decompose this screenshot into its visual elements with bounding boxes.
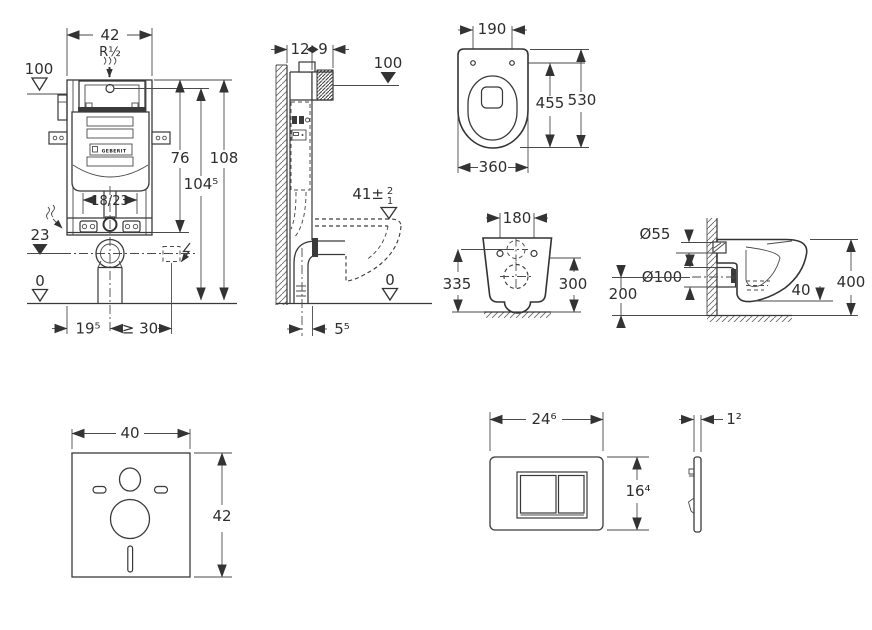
ground-hatch (484, 312, 551, 318)
wall-section-right (707, 218, 717, 315)
dim-label-360: 360 (479, 158, 508, 176)
dim-label-19-5: 19⁵ (75, 320, 100, 338)
level-mark-0-side: 0 (383, 271, 398, 300)
flush-plate-side-view: 1² (679, 410, 742, 532)
plate-clip-bottom (689, 498, 695, 514)
plate-outline (490, 457, 603, 530)
floor-hatch (707, 316, 792, 322)
dim-label-24-6: 24⁶ (531, 410, 556, 428)
wc-rear-view: 180 335 300 (443, 209, 588, 318)
dim-label-108: 108 (210, 149, 239, 167)
dim-mat-width-40: 40 (72, 424, 190, 449)
hot-water-steam-icon-small (47, 205, 63, 228)
level-mark-100: 100 (25, 60, 67, 94)
level-mark-23: 23 (27, 226, 62, 255)
bottom-fittings (67, 217, 152, 233)
dim-plate-height: 16⁴ (607, 457, 651, 530)
level-label-0: 0 (35, 272, 45, 290)
inspection-box (78, 81, 209, 112)
dim-plate-thickness: 1² (679, 410, 742, 452)
dim-offset-19-5: 19⁵ (52, 306, 101, 338)
dim-label-o100: Ø100 (642, 268, 682, 286)
dim-label-o55: Ø55 (640, 225, 671, 243)
frame-side-view: 12 9 100 41± 2 1 0 5⁵ (271, 40, 432, 338)
dim-height-104-5: 104⁵ (184, 89, 219, 301)
dim-label-5-5: 5⁵ (334, 320, 350, 338)
protection-box (317, 70, 333, 100)
brand-label: GEBERIT (102, 149, 127, 155)
level-mark-100-side: 100 (333, 54, 402, 86)
technical-drawing-sheet: 42 R½ 100 GEBERIT (0, 0, 872, 630)
frame-front-view: 42 R½ 100 GEBERIT (25, 26, 239, 338)
level-label-100: 100 (25, 60, 54, 78)
dim-mat-height-42: 42 (194, 453, 232, 577)
wall-section (276, 65, 287, 305)
frame-column (290, 62, 333, 303)
dim-plate-width: 24⁶ (490, 410, 603, 451)
level-label-23: 23 (30, 226, 49, 244)
dim-label-42: 42 (100, 26, 119, 44)
dim-label-40: 40 (791, 281, 810, 299)
dim-label-530: 530 (568, 91, 597, 109)
dim-label-mat-42: 42 (212, 507, 231, 525)
level-label-100-side: 100 (374, 54, 403, 72)
dim-height-335: 335 (443, 250, 484, 313)
dim-label-335: 335 (443, 275, 472, 293)
dim-label-9: 9 (318, 40, 328, 58)
hot-water-steam-icon (104, 57, 116, 77)
dim-label-104-5: 104⁵ (184, 175, 219, 193)
lightning-icon (182, 243, 191, 262)
wc-side-view: Ø55 Ø100 200 40 400 (609, 218, 866, 327)
wc-top-view: 190 455 530 360 (458, 20, 596, 176)
dim-offset-min-30: ≥ 30 (111, 263, 172, 338)
sound-mat-view: 40 42 (72, 424, 232, 577)
dim-inlet-55: Ø55 (640, 225, 713, 263)
dim-label-12: 12 (290, 40, 309, 58)
inlet-stub (713, 242, 726, 253)
dim-label-41: 41± (352, 185, 384, 203)
dim-label-455: 455 (536, 94, 565, 112)
dim-label-200: 200 (609, 285, 638, 303)
drawing-canvas: 42 R½ 100 GEBERIT (0, 0, 872, 630)
dim-label-mat-40: 40 (120, 424, 139, 442)
dim-height-300: 300 (550, 258, 587, 312)
level-mark-0: 0 (33, 272, 48, 301)
plate-clip-top (689, 469, 694, 476)
mat-outline (72, 453, 190, 577)
dim-label-300: 300 (559, 275, 588, 293)
dim-label-min-30: ≥ 30 (122, 320, 158, 338)
power-connection (163, 243, 190, 262)
dim-label-41-tol-dn: 1 (387, 196, 393, 207)
dim-length-455: 455 (536, 64, 565, 148)
level-label-0-side: 0 (385, 271, 395, 289)
plate-side-outline (694, 457, 701, 532)
dim-label-16-4: 16⁴ (625, 482, 650, 500)
dim-seat-height-41: 41± 2 1 (352, 185, 396, 219)
dim-label-180: 180 (503, 209, 532, 227)
dim-label-400: 400 (837, 273, 866, 291)
flush-plate-front-view: 24⁶ 16⁴ (490, 410, 651, 530)
dim-label-190: 190 (478, 20, 507, 38)
dim-offset-5-5: 5⁵ (287, 248, 350, 338)
dim-label-76: 76 (170, 149, 189, 167)
dim-label-1-2: 1² (726, 410, 742, 428)
